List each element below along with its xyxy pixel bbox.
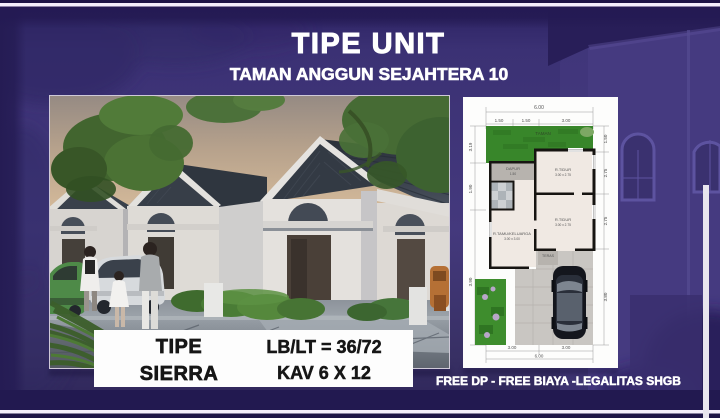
svg-text:3.00: 3.00	[508, 345, 517, 350]
svg-text:3.00: 3.00	[562, 345, 571, 350]
svg-text:TAMAN: TAMAN	[535, 131, 550, 136]
svg-text:3.00 x 2.75: 3.00 x 2.75	[555, 173, 571, 177]
svg-text:1.50: 1.50	[510, 172, 516, 176]
svg-text:R.TIDUR: R.TIDUR	[555, 217, 571, 222]
svg-text:DAPUR: DAPUR	[506, 166, 520, 171]
svg-text:1.90: 1.90	[468, 184, 473, 193]
svg-text:3.00: 3.00	[562, 118, 571, 123]
svg-text:1.50: 1.50	[495, 118, 504, 123]
svg-text:1.50: 1.50	[603, 134, 608, 143]
svg-text:3.19: 3.19	[468, 142, 473, 151]
svg-text:3.00 x 3.00: 3.00 x 3.00	[504, 237, 520, 241]
svg-text:3.00 x 2.75: 3.00 x 2.75	[555, 223, 571, 227]
svg-text:R.TAMU/KELUARGA: R.TAMU/KELUARGA	[493, 231, 531, 236]
svg-text:TERAS: TERAS	[542, 254, 555, 258]
svg-text:R.TIDUR: R.TIDUR	[555, 167, 571, 172]
svg-text:2.75: 2.75	[603, 168, 608, 177]
svg-text:6.00: 6.00	[535, 354, 544, 359]
svg-text:2.75: 2.75	[603, 216, 608, 225]
svg-text:1.50: 1.50	[522, 118, 531, 123]
svg-text:6.00: 6.00	[534, 105, 544, 111]
svg-text:3.80: 3.80	[603, 292, 608, 301]
svg-text:3.90: 3.90	[468, 277, 473, 286]
